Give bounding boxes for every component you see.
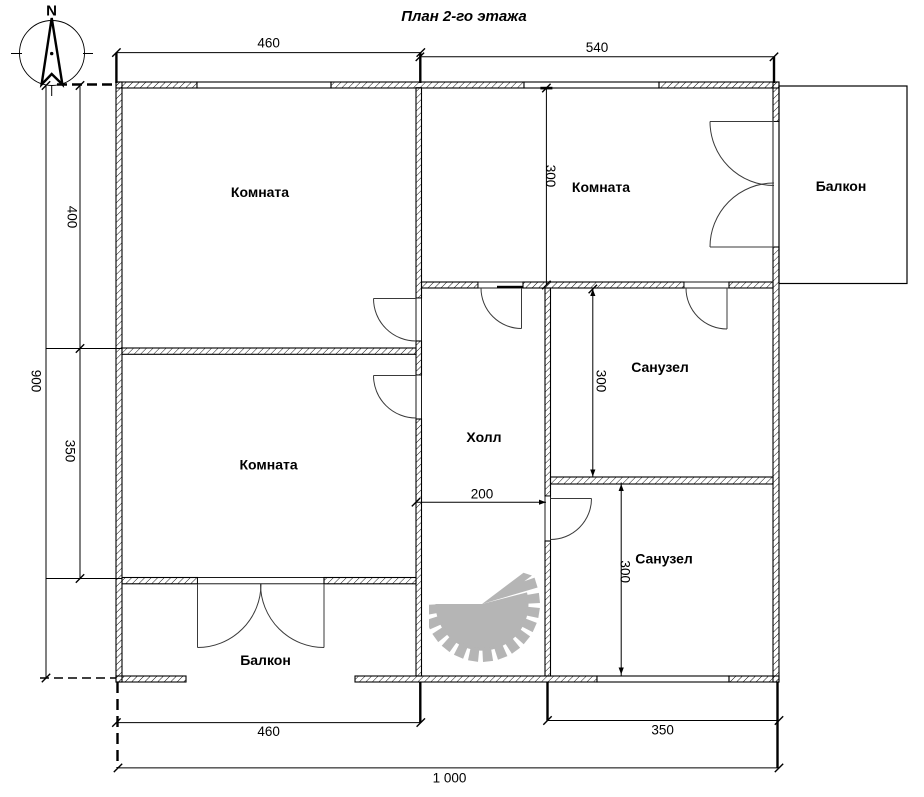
svg-text:350: 350 — [63, 440, 78, 463]
svg-text:900: 900 — [29, 370, 44, 393]
svg-text:200: 200 — [471, 487, 494, 502]
svg-text:Комната: Комната — [572, 179, 630, 195]
svg-text:Санузел: Санузел — [631, 359, 689, 375]
svg-text:Санузел: Санузел — [635, 551, 693, 567]
svg-text:Холл: Холл — [466, 429, 501, 445]
svg-text:Комната: Комната — [231, 184, 289, 200]
svg-text:300: 300 — [543, 165, 558, 188]
svg-text:460: 460 — [257, 36, 280, 51]
svg-text:N: N — [46, 2, 57, 19]
svg-text:300: 300 — [618, 560, 633, 583]
svg-text:300: 300 — [594, 370, 609, 393]
svg-text:540: 540 — [586, 40, 609, 55]
svg-text:1 000: 1 000 — [433, 771, 467, 786]
svg-text:Балкон: Балкон — [240, 652, 291, 668]
svg-text:Комната: Комната — [240, 457, 298, 473]
svg-text:460: 460 — [257, 724, 280, 739]
svg-text:400: 400 — [65, 206, 80, 229]
svg-text:Балкон: Балкон — [816, 178, 867, 194]
svg-text:План 2-го этажа: План 2-го этажа — [401, 8, 527, 25]
svg-text:350: 350 — [651, 723, 674, 738]
